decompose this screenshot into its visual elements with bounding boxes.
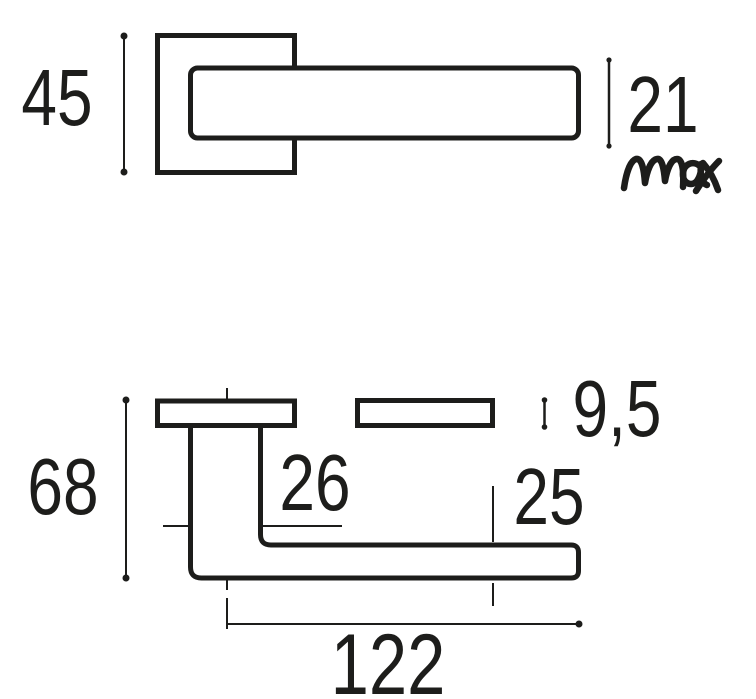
dimension-label-9-5: 9,5 bbox=[573, 369, 662, 449]
escutcheon-side-profile bbox=[358, 401, 493, 426]
dimension-line-68 bbox=[123, 397, 130, 582]
dimension-label-122: 122 bbox=[331, 622, 446, 699]
dimension-label-25: 25 bbox=[513, 457, 584, 537]
technical-drawing-canvas: 45 21 68 26 9,5 25 122 bbox=[0, 0, 756, 699]
dimension-label-26: 26 bbox=[279, 443, 350, 523]
dimension-line-9-5 bbox=[542, 397, 548, 430]
dimension-label-68: 68 bbox=[27, 447, 98, 527]
dimension-line-21 bbox=[606, 57, 611, 148]
dimension-line-68-dot-bottom bbox=[123, 575, 130, 582]
dimension-line-9-5-dot-top bbox=[542, 397, 548, 403]
dimension-line-21-dot-top bbox=[606, 57, 611, 62]
dimension-label-21: 21 bbox=[627, 65, 698, 145]
dimension-line-9-5-dot-bottom bbox=[542, 424, 548, 430]
handwritten-max-annotation bbox=[624, 159, 719, 191]
dimension-line-45-dot-top bbox=[121, 33, 128, 40]
dimension-label-45: 45 bbox=[21, 58, 92, 138]
lever-front-outline bbox=[191, 68, 579, 138]
dimension-line-122-dot-right bbox=[576, 621, 583, 628]
rosette-side-profile bbox=[158, 401, 295, 426]
dimension-line-45 bbox=[121, 33, 128, 176]
dimension-line-45-dot-bottom bbox=[121, 169, 128, 176]
handwritten-max-m-stroke bbox=[624, 159, 683, 188]
dimension-line-68-dot-top bbox=[123, 397, 130, 404]
dimension-line-21-dot-bottom bbox=[606, 143, 611, 148]
